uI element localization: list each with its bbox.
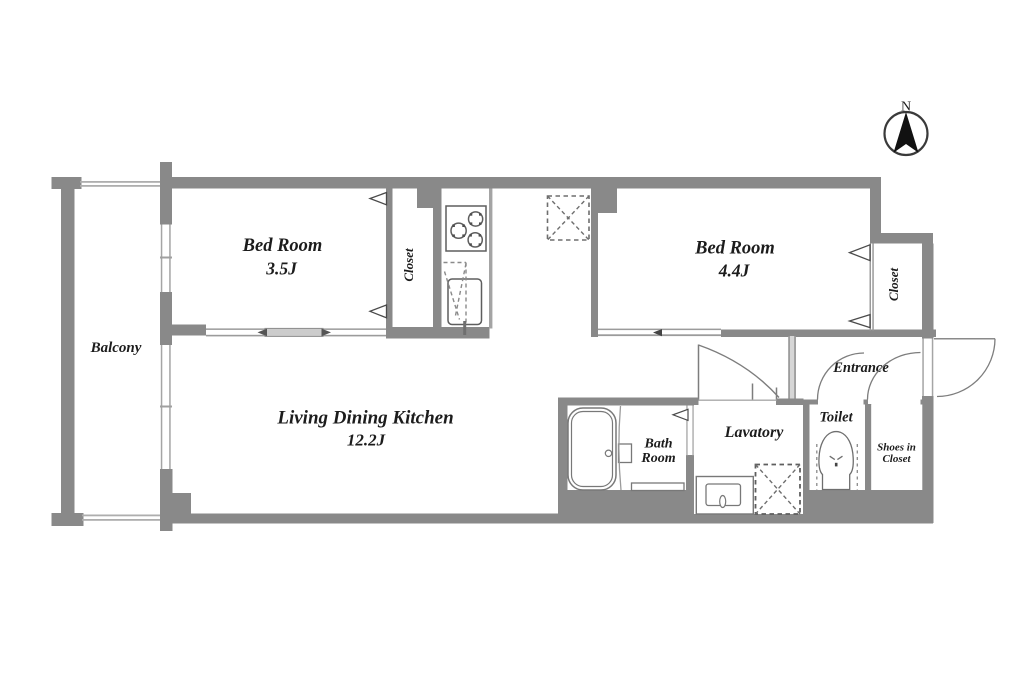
svg-text:N: N: [901, 100, 911, 115]
svg-text:Shoes in: Shoes in: [877, 442, 916, 454]
svg-text:Bath: Bath: [643, 437, 672, 452]
svg-text:12.2J: 12.2J: [347, 431, 386, 450]
svg-text:4.4J: 4.4J: [718, 261, 751, 281]
svg-text:Balcony: Balcony: [90, 340, 142, 356]
svg-text:Closet: Closet: [401, 248, 416, 282]
svg-text:Closet: Closet: [882, 453, 911, 465]
svg-text:Room: Room: [640, 451, 675, 466]
svg-text:Bed Room: Bed Room: [242, 236, 323, 256]
svg-text:Closet: Closet: [886, 268, 901, 302]
svg-text:Living Dining Kitchen: Living Dining Kitchen: [276, 408, 453, 429]
svg-text:3.5J: 3.5J: [265, 259, 298, 279]
svg-text:Bed Room: Bed Room: [694, 239, 775, 259]
svg-text:Lavatory: Lavatory: [724, 424, 785, 441]
svg-text:Toilet: Toilet: [819, 410, 853, 426]
